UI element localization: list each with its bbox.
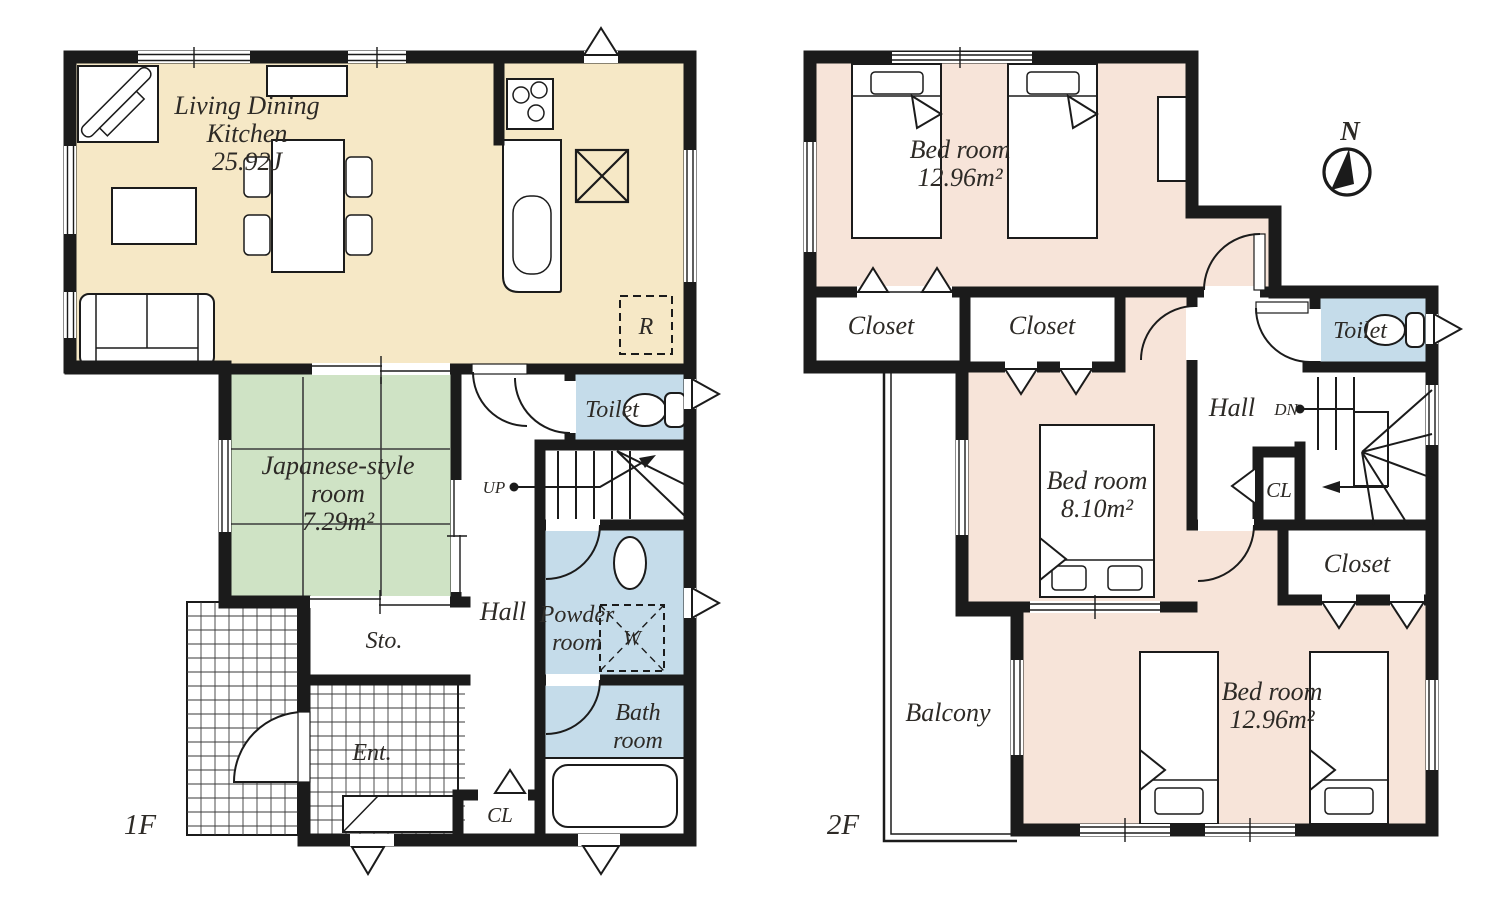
door-ldk-hall xyxy=(472,364,527,426)
label-floor-2: 2F xyxy=(827,809,860,841)
label-japanese-area: 7.29m² xyxy=(302,507,375,536)
window-ldk-left-1 xyxy=(64,146,76,234)
label-closet-b: Closet xyxy=(1009,311,1076,340)
coffee-table xyxy=(112,188,196,244)
label-ldk-area: 25.92J xyxy=(212,147,284,176)
label-powder-line1: Powder xyxy=(539,602,615,628)
label-dn: DN xyxy=(1273,400,1299,419)
window-bedroom2-left xyxy=(956,440,968,535)
label-closet-a: Closet xyxy=(848,311,915,340)
washer-label: W xyxy=(623,626,643,650)
label-bedroom1-area: 12.96m² xyxy=(917,163,1003,192)
bed-icon-2 xyxy=(1008,64,1097,238)
label-powder-line2: room xyxy=(552,630,602,656)
vent-powder-right xyxy=(684,588,719,618)
label-storage: Sto. xyxy=(366,628,403,654)
window-bedroom3-right xyxy=(1426,680,1438,770)
label-floor-1: 1F xyxy=(124,809,157,841)
label-japanese-line1: Japanese-style xyxy=(261,451,414,480)
door-marker-cl-1f xyxy=(478,770,528,801)
label-toilet-2f: Toilet xyxy=(1333,318,1388,344)
door-toilet-2f xyxy=(1256,302,1321,362)
vent-top-right-1f xyxy=(584,28,618,63)
label-ldk-line1: Living Dining xyxy=(173,91,319,120)
window-bedroom3-left xyxy=(1011,660,1023,755)
label-bedroom2: Bed room xyxy=(1047,466,1148,495)
label-bath-line2: room xyxy=(613,728,663,754)
window-ldk-left-2 xyxy=(64,292,76,338)
label-bath-line1: Bath xyxy=(615,700,660,726)
label-cl-2f: CL xyxy=(1266,478,1292,502)
label-bedroom2-area: 8.10m² xyxy=(1061,494,1134,523)
bathtub-icon xyxy=(553,765,677,827)
window-bedroom1-left xyxy=(804,142,816,252)
compass-icon: N xyxy=(1324,116,1370,195)
label-entrance: Ent. xyxy=(351,740,391,766)
label-hall-1f: Hall xyxy=(479,597,526,626)
compass-north-label: N xyxy=(1339,116,1361,146)
floor-plan-page: R W xyxy=(0,0,1500,900)
label-toilet-1f: Toilet xyxy=(585,397,640,423)
fridge-label: R xyxy=(638,314,654,340)
stairs-down-icon xyxy=(1296,377,1433,525)
label-ldk-line2: Kitchen xyxy=(206,119,288,148)
stove-icon xyxy=(507,79,553,129)
washbasin-icon xyxy=(614,537,646,589)
kitchen-counter xyxy=(503,140,561,292)
label-cl-1f: CL xyxy=(487,803,513,827)
vent-toilet-right-2f xyxy=(1426,314,1461,344)
label-japanese-line2: room xyxy=(311,479,365,508)
front-door xyxy=(234,712,310,782)
sofa-icon xyxy=(80,294,214,366)
window-japanese-left xyxy=(219,440,231,532)
shoe-cabinet xyxy=(343,796,461,832)
piano-icon xyxy=(78,65,161,147)
bed-icon-3 xyxy=(1140,652,1218,824)
label-bedroom3: Bed room xyxy=(1222,677,1323,706)
vent-toilet-right-1f xyxy=(684,379,719,409)
floor-2-plan: N Bed room 12.96m² Closet Closet Toilet … xyxy=(804,47,1461,842)
label-closet-c: Closet xyxy=(1324,549,1391,578)
sink-icon xyxy=(513,196,551,274)
door-toilet-1f xyxy=(515,378,576,433)
cl-2f-door-fold xyxy=(1232,468,1256,504)
label-hall-2f: Hall xyxy=(1208,393,1255,422)
label-bedroom1: Bed room xyxy=(910,135,1011,164)
window-kitchen-right xyxy=(684,150,696,282)
floor-plan-drawing: R W xyxy=(0,0,1500,900)
floor-1-plan: R W xyxy=(64,28,719,874)
label-bedroom3-area: 12.96m² xyxy=(1229,705,1315,734)
door-marker-bath-bottom xyxy=(578,834,620,874)
label-balcony: Balcony xyxy=(905,698,991,727)
label-up: UP xyxy=(483,478,506,497)
door-marker-entrance-bottom xyxy=(350,834,394,874)
